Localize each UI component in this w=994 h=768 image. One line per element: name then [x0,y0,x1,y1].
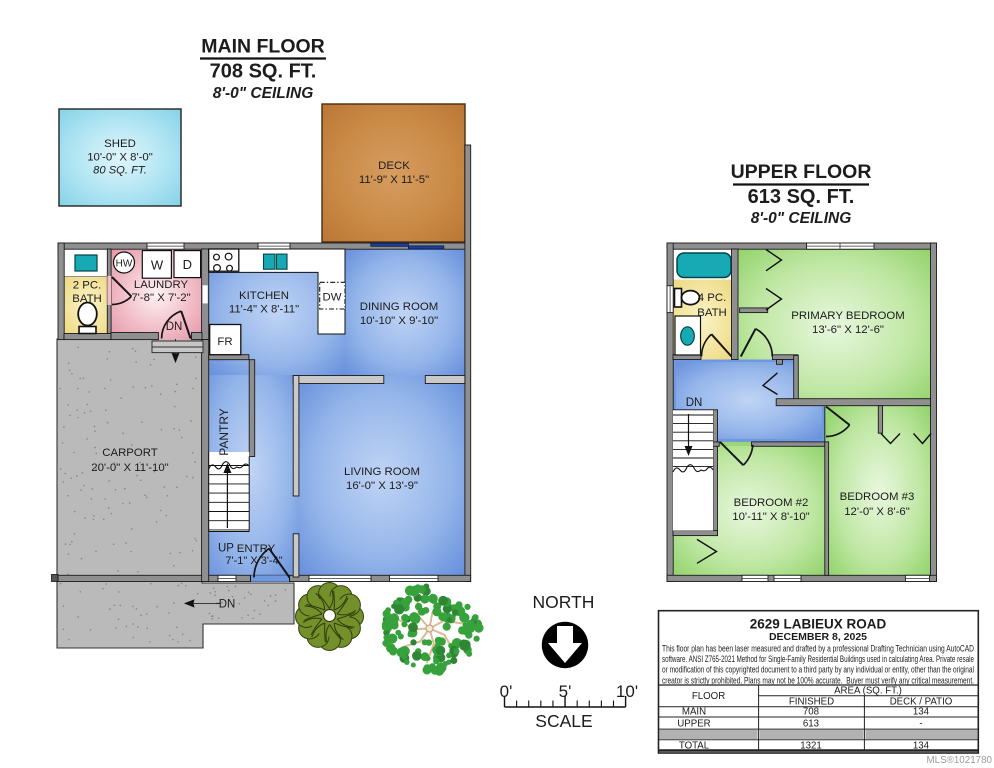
svg-text:SHED: SHED [104,138,136,150]
svg-text:PANTRY: PANTRY [217,408,231,456]
svg-text:13'-6" X 12'-6": 13'-6" X 12'-6" [812,324,884,336]
svg-text:This floor plan has been laser: This floor plan has been laser measured … [662,644,974,654]
svg-text:BATH: BATH [697,307,727,319]
svg-text:7'-8" X 7'-2": 7'-8" X 7'-2" [131,292,190,304]
svg-text:KITCHEN: KITCHEN [239,290,289,302]
svg-text:LAUNDRY: LAUNDRY [134,279,189,291]
svg-text:10'-11" X 8'-10": 10'-11" X 8'-10" [732,511,809,523]
svg-text:708 SQ. FT.: 708 SQ. FT. [210,61,317,83]
svg-text:11'-4" X 8'-11": 11'-4" X 8'-11" [229,304,299,316]
svg-text:-: - [919,719,922,730]
svg-text:134: 134 [913,741,930,752]
svg-text:MLS®1021780: MLS®1021780 [926,755,992,766]
svg-text:708: 708 [803,707,819,718]
svg-text:5': 5' [559,682,572,701]
svg-text:NORTH: NORTH [533,592,595,612]
svg-text:D: D [183,257,192,272]
svg-text:LIVING ROOM: LIVING ROOM [344,466,420,478]
svg-text:TOTAL: TOTAL [679,741,710,752]
svg-text:DN: DN [686,397,703,409]
svg-text:2629 LABIEUX ROAD: 2629 LABIEUX ROAD [750,617,887,632]
svg-text:16'-0" X 13'-9": 16'-0" X 13'-9" [346,480,418,492]
svg-text:80 SQ. FT.: 80 SQ. FT. [93,165,147,177]
svg-text:BEDROOM #2: BEDROOM #2 [734,497,809,509]
svg-text:8'-0" CEILING: 8'-0" CEILING [213,85,314,102]
svg-text:DECK: DECK [378,160,410,172]
svg-text:2 PC.: 2 PC. [73,280,102,292]
svg-text:FLOOR: FLOOR [692,691,725,702]
svg-text:11'-9" X 11'-5": 11'-9" X 11'-5" [359,174,429,186]
svg-text:BEDROOM #3: BEDROOM #3 [840,491,915,503]
svg-text:1321: 1321 [800,741,822,752]
svg-text:DN: DN [219,599,236,611]
svg-text:W: W [151,258,164,273]
svg-text:software. ANSI Z765-2021 Metho: software. ANSI Z765-2021 Method for Sing… [662,654,974,664]
svg-text:613: 613 [803,719,819,730]
svg-text:4 PC.: 4 PC. [698,292,727,304]
svg-text:UPPER: UPPER [677,719,710,730]
svg-text:AREA (SQ. FT.): AREA (SQ. FT.) [834,686,902,697]
svg-text:MAIN FLOOR: MAIN FLOOR [201,36,324,58]
svg-text:SCALE: SCALE [535,711,592,731]
svg-text:MAIN: MAIN [682,707,706,718]
svg-text:DINING ROOM: DINING ROOM [360,301,438,313]
svg-text:134: 134 [913,707,930,718]
svg-text:DW: DW [323,292,342,304]
svg-text:UPPER FLOOR: UPPER FLOOR [731,161,872,183]
svg-text:UP: UP [218,543,234,555]
svg-text:FR: FR [217,336,232,348]
svg-text:creator is strictly prohibited: creator is strictly prohibited. Plans ma… [662,675,974,685]
svg-text:FINISHED: FINISHED [789,696,834,707]
svg-text:BATH: BATH [72,293,102,305]
svg-text:613 SQ. FT.: 613 SQ. FT. [748,186,855,208]
svg-text:12'-0" X 8'-6": 12'-0" X 8'-6" [844,506,910,518]
svg-text:DN: DN [166,321,183,333]
svg-text:CARPORT: CARPORT [102,447,158,459]
svg-text:PRIMARY BEDROOM: PRIMARY BEDROOM [791,310,905,322]
svg-text:or modification of this copyri: or modification of this copyrighted docu… [662,665,974,675]
svg-text:HW: HW [116,259,133,270]
svg-text:10'-0" X 8'-0": 10'-0" X 8'-0" [87,152,153,164]
svg-text:10': 10' [616,682,638,701]
svg-text:10'-10" X 9'-10": 10'-10" X 9'-10" [360,315,438,327]
svg-text:DECEMBER 8, 2025: DECEMBER 8, 2025 [769,631,867,643]
svg-text:20'-0" X 11'-10": 20'-0" X 11'-10" [91,462,168,474]
svg-text:DECK / PATIO: DECK / PATIO [890,696,953,707]
svg-text:8'-0" CEILING: 8'-0" CEILING [751,210,852,227]
svg-text:0': 0' [500,682,513,701]
